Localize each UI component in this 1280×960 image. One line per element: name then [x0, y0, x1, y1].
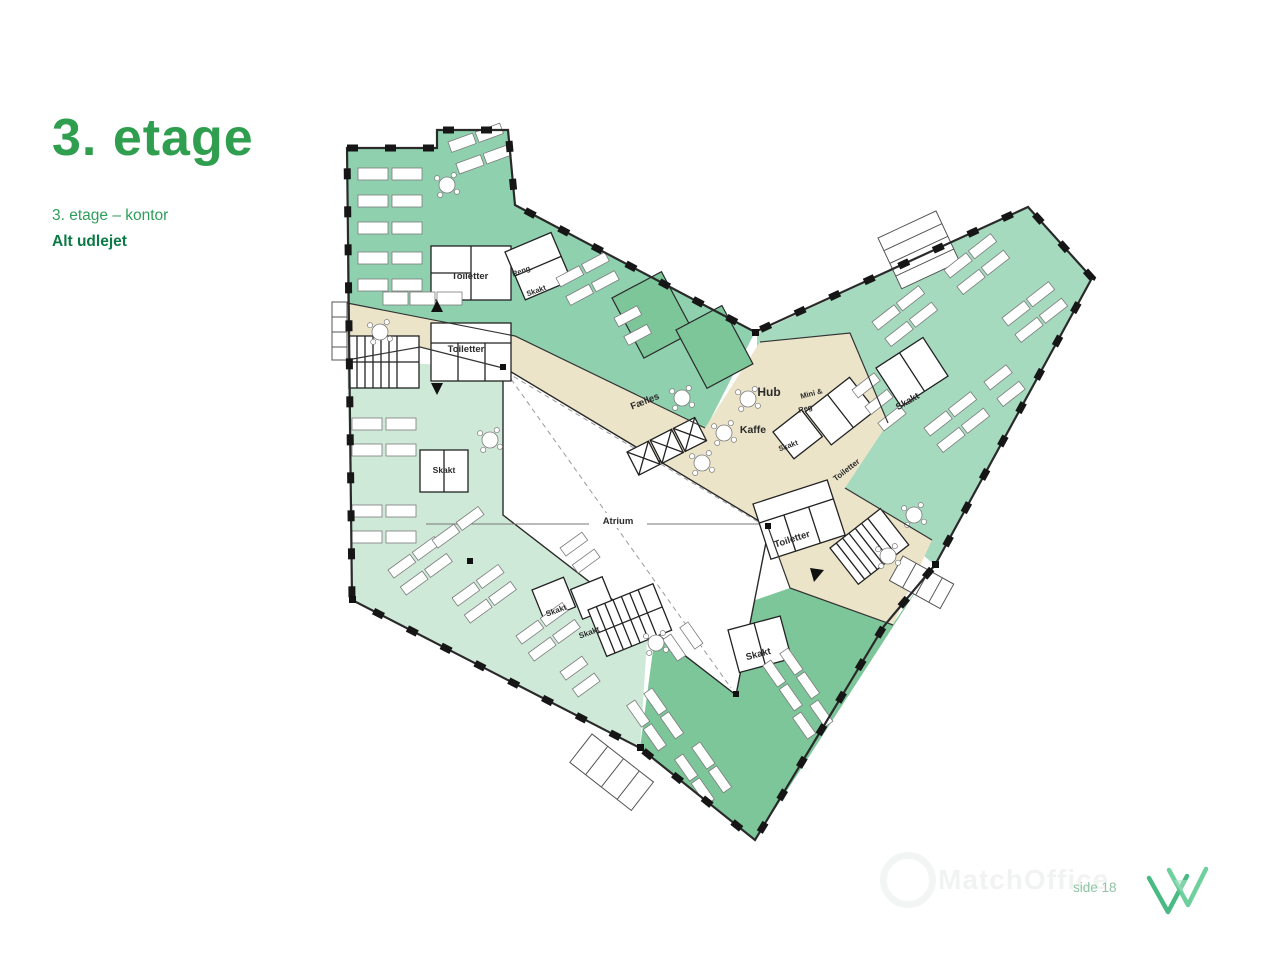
balcony-left	[332, 302, 347, 360]
brochure-page: 3. etage 3. etage – kontor Alt udlejet M…	[0, 0, 1280, 960]
w-logo	[1149, 869, 1206, 912]
stairwell-left	[349, 336, 419, 388]
label-skakt-left: Skakt	[433, 465, 456, 475]
label-kaffe: Kaffe	[740, 424, 766, 436]
label-hub: Hub	[757, 385, 780, 399]
floor-plan: Toiletter Reng. Skakt Toiletter Skakt Fæ…	[0, 0, 1280, 960]
label-atrium: Atrium	[603, 516, 634, 527]
label-toiletter-2: Toiletter	[448, 344, 485, 355]
label-toiletter-top: Toiletter	[452, 271, 489, 282]
